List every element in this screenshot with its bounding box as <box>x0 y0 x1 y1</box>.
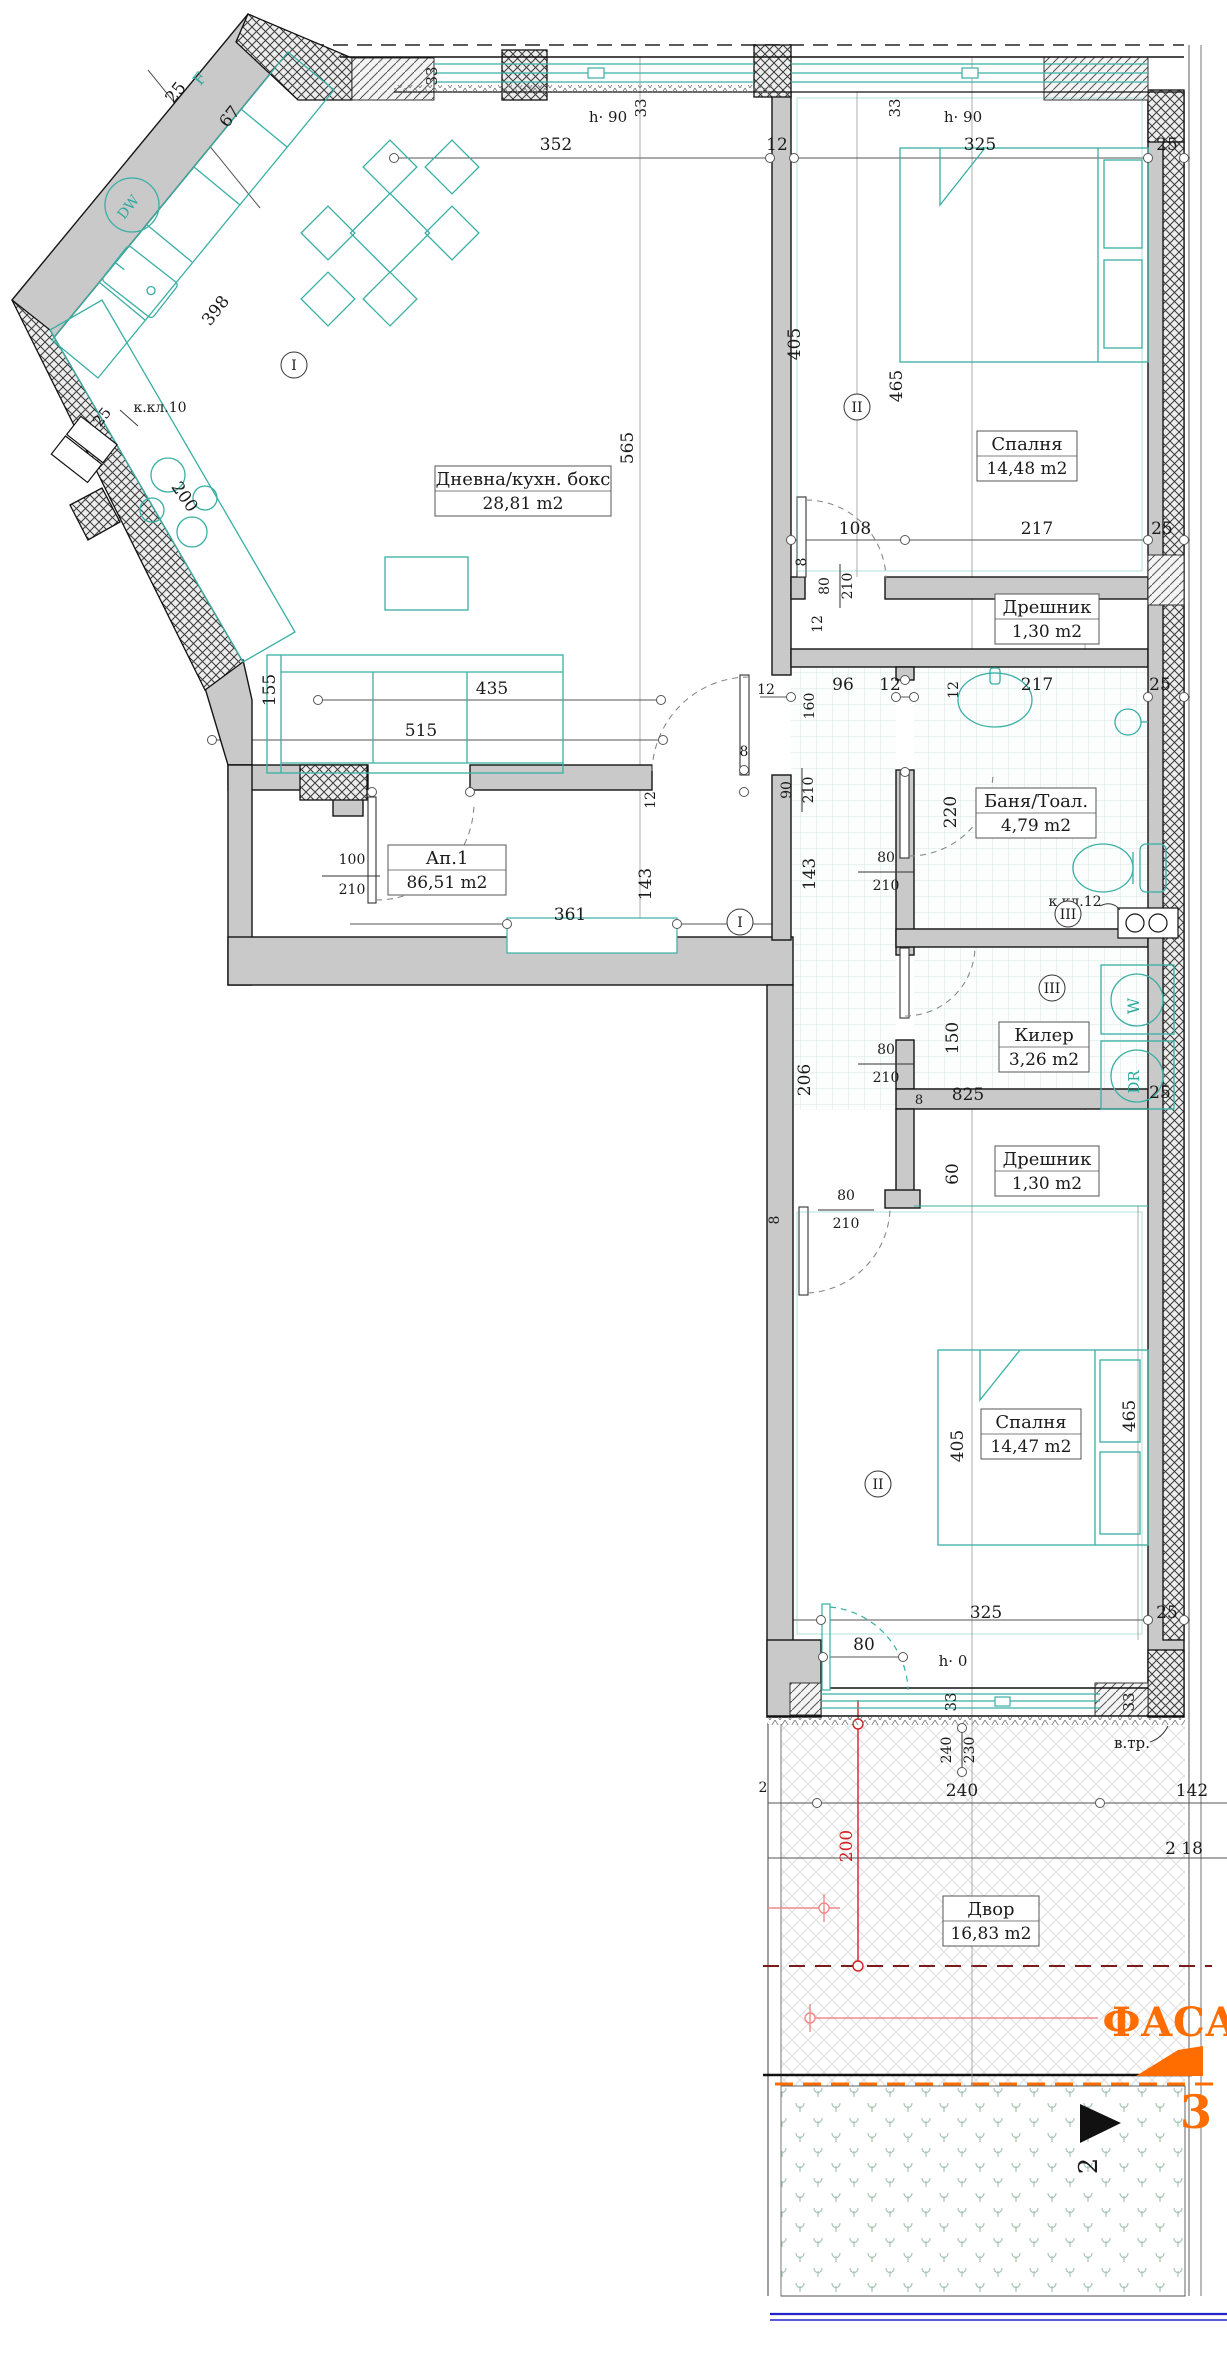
room-area: 86,51 m2 <box>406 873 487 893</box>
dim-tick <box>901 768 910 777</box>
wall-west-strip <box>767 985 793 1717</box>
dim-label: 150 <box>943 1022 963 1054</box>
dim-label: 405 <box>948 1430 968 1462</box>
bedroom2-boundary <box>797 1212 1142 1634</box>
room-name: Дрешник <box>1003 597 1093 618</box>
dim-label: 200 <box>837 1830 857 1862</box>
dim-tick <box>813 1799 822 1808</box>
wall-lobby-stub <box>885 1190 920 1208</box>
dim-tick <box>657 696 666 705</box>
dim-label: h· 90 <box>589 108 627 126</box>
dim-tick <box>208 736 217 745</box>
dim-label: W <box>1124 997 1143 1014</box>
wall-east-insulation <box>1163 142 1184 1640</box>
room-area: 1,30 m2 <box>1012 1174 1082 1194</box>
lintel-top-left <box>352 58 434 100</box>
dim-label: 25 <box>1149 675 1171 695</box>
dim-label: 60 <box>943 1163 963 1185</box>
dim-label: 465 <box>887 370 907 402</box>
axis-numeral: I <box>291 358 297 374</box>
room-name: Ап.1 <box>426 848 469 869</box>
dim-tick <box>503 920 512 929</box>
room-label: Баня/Тоал.4,79 m2 <box>976 788 1096 838</box>
dim-label: 33 <box>423 66 441 85</box>
dim-label: h· 90 <box>944 108 982 126</box>
dim-label: 33 <box>886 98 904 117</box>
dim-label: 220 <box>941 796 961 828</box>
dim-tick <box>1096 1799 1105 1808</box>
room-area: 14,47 m2 <box>990 1437 1071 1457</box>
dim-label: 143 <box>800 858 820 890</box>
dim-label: 210 <box>840 573 856 600</box>
grass-area <box>781 2086 1185 2296</box>
dim-label: 210 <box>833 1216 860 1232</box>
dim-label: DR <box>1125 1070 1143 1094</box>
axis-marker: III <box>1055 901 1081 927</box>
door-living-hall <box>652 675 749 775</box>
dim-label: 25 <box>1149 1083 1171 1103</box>
room-label: Ап.186,51 m2 <box>388 845 506 895</box>
dim-tick <box>901 676 910 685</box>
dim-label: 33 <box>942 1692 960 1711</box>
dim-tick <box>817 1616 826 1625</box>
dim-tick <box>958 1724 967 1733</box>
dim-label: 210 <box>801 777 817 804</box>
dim-label: 8 <box>915 1093 923 1108</box>
dim-label: 210 <box>873 1070 900 1086</box>
wall-left-diagonal <box>12 14 288 340</box>
floor-plan-page: 3521232525h· 90h· 9033333325673982002556… <box>0 0 1227 2357</box>
dim-label: 217 <box>1021 519 1053 539</box>
dim-tick <box>314 696 323 705</box>
dim-label: 465 <box>1120 1400 1140 1432</box>
dim-label: 2 <box>759 1780 768 1796</box>
bed-bedroom1 <box>900 148 1148 362</box>
dim-tick <box>790 154 799 163</box>
axis-marker: II <box>865 1471 891 1497</box>
dim-tick <box>787 693 796 702</box>
dim-tick <box>1180 693 1189 702</box>
dim-label: 8 <box>767 1216 783 1225</box>
dim-label: 210 <box>873 878 900 894</box>
dim-label: 142 <box>1176 1781 1208 1801</box>
axis-numeral: III <box>1044 981 1061 997</box>
axis-marker: I <box>727 909 753 935</box>
pier-entry <box>300 765 367 800</box>
dim-label: 12 <box>946 681 962 699</box>
dim-label: 90 <box>779 781 795 799</box>
floor-plan-svg: 3521232525h· 90h· 9033333325673982002556… <box>0 0 1227 2357</box>
dim-label: 3 <box>1180 2085 1212 2139</box>
dim-label: 80 <box>817 577 833 595</box>
dim-label: 240 <box>946 1781 978 1801</box>
dim-label: 200 <box>167 478 202 516</box>
dim-label: 80 <box>877 850 895 866</box>
wall-dressing2-west <box>896 1109 914 1195</box>
axis-numeral: II <box>872 1477 883 1493</box>
dim-label: 565 <box>618 432 638 464</box>
dim-label: 155 <box>260 674 280 706</box>
dim-label: 2 <box>1074 2158 1104 2175</box>
floor-finishes <box>791 667 1148 1110</box>
dim-tick <box>1144 693 1153 702</box>
dim-label: 325 <box>970 1603 1002 1623</box>
dim-label: 12 <box>757 682 775 698</box>
dim-label: 12 <box>879 675 901 695</box>
dim-label: 325 <box>964 135 996 155</box>
room-label: Спалня14,48 m2 <box>977 431 1077 481</box>
dim-tick <box>1180 536 1189 545</box>
dim-tick <box>740 766 749 775</box>
pier-bottom-right <box>1148 1650 1184 1717</box>
wall-bedroom1-south-a <box>791 577 805 599</box>
dim-tick <box>899 1653 908 1662</box>
wall-kitchen-diag-hatch <box>12 300 243 690</box>
dim-tick <box>910 693 919 702</box>
dim-tick <box>901 536 910 545</box>
dim-label: 8 <box>740 744 749 760</box>
dim-label: 108 <box>839 519 871 539</box>
dim-label: 352 <box>540 135 572 155</box>
room-name: Дневна/кухн. бокс <box>436 469 611 490</box>
dim-label: 435 <box>476 679 508 699</box>
parapet-ticks-bottom <box>767 1717 1185 1725</box>
dim-tick <box>740 788 749 797</box>
dim-tick <box>958 1768 967 1777</box>
dim-label: 12 <box>643 791 659 809</box>
dim-tick <box>787 536 796 545</box>
dim-label: 160 <box>802 693 818 720</box>
vent-shaft-kkl12 <box>1118 908 1178 938</box>
lintel-bottom-left <box>790 1683 821 1715</box>
dim-label: 80 <box>853 1635 875 1655</box>
room-label: Дневна/кухн. бокс28,81 m2 <box>435 466 611 516</box>
dim-label: 361 <box>554 905 586 925</box>
dim-label: 143 <box>636 868 656 900</box>
dim-label: 25 <box>1156 135 1178 155</box>
dim-tick <box>1144 536 1153 545</box>
dim-label: 33 <box>1120 1692 1138 1711</box>
room-area: 14,48 m2 <box>986 459 1067 479</box>
dim-label: 825 <box>952 1085 984 1105</box>
room-label: Двор16,83 m2 <box>943 1896 1039 1946</box>
dim-label: 12 <box>766 135 788 155</box>
dim-label: 398 <box>198 292 234 330</box>
dim-label: 210 <box>339 882 366 898</box>
room-label: Дрешник1,30 m2 <box>995 1146 1099 1196</box>
dim-label: 405 <box>785 328 805 360</box>
dim-label: 2 18 <box>1165 1839 1203 1859</box>
dim-tick <box>466 788 475 797</box>
dim-tick <box>390 154 399 163</box>
dim-tick <box>892 693 901 702</box>
room-label: Дрешник1,30 m2 <box>995 594 1099 644</box>
room-name: Двор <box>967 1899 1014 1920</box>
dim-label: 230 <box>962 1737 978 1764</box>
dim-label: 240 <box>939 1737 955 1764</box>
dim-tick <box>368 788 377 797</box>
dim-label: 96 <box>832 675 854 695</box>
dim-tick <box>673 920 682 929</box>
dim-label: 25 <box>1156 1603 1178 1623</box>
lintel-east-mid <box>1148 555 1184 605</box>
dim-label: ФАСА <box>1103 1999 1227 2046</box>
axis-marker: II <box>844 394 870 420</box>
room-area: 16,83 m2 <box>950 1924 1031 1944</box>
dim-label: 25 <box>1151 519 1173 539</box>
room-label: Килер3,26 m2 <box>999 1022 1089 1072</box>
parapet-ticks-top <box>394 85 772 93</box>
dim-label: 80 <box>837 1188 855 1204</box>
axis-marker: III <box>1039 975 1065 1001</box>
dim-label: 8 <box>794 558 810 567</box>
dim-label: 33 <box>632 98 650 117</box>
wall-bath-south <box>896 929 1148 947</box>
dim-label: h· 0 <box>939 1652 968 1670</box>
dim-label: 80 <box>877 1042 895 1058</box>
dim-label: 100 <box>339 852 366 868</box>
dim-tick <box>1144 1616 1153 1625</box>
bedroom1-boundary <box>797 98 1142 571</box>
room-name: Дрешник <box>1003 1149 1093 1170</box>
coffee-table <box>385 557 468 610</box>
dim-label: 206 <box>795 1064 815 1096</box>
dim-tick <box>1180 154 1189 163</box>
dim-tick <box>1180 1616 1189 1625</box>
room-name: Килер <box>1014 1025 1074 1046</box>
room-area: 28,81 m2 <box>482 494 563 514</box>
room-label: Спалня14,47 m2 <box>981 1409 1081 1459</box>
dim-tick <box>819 1653 828 1662</box>
room-name: Спалня <box>991 434 1062 455</box>
room-area: 4,79 m2 <box>1001 816 1071 836</box>
wall-storage-south <box>896 1089 1148 1109</box>
dim-tick <box>766 154 775 163</box>
axis-numeral: III <box>1060 907 1077 923</box>
dim-tick <box>659 736 668 745</box>
dim-label: к.кл.10 <box>133 400 186 416</box>
room-area: 1,30 m2 <box>1012 622 1082 642</box>
room-area: 3,26 m2 <box>1009 1050 1079 1070</box>
axis-numeral: II <box>851 400 862 416</box>
sofa <box>267 655 563 773</box>
axis-numeral: I <box>737 915 743 931</box>
dim-label: 515 <box>405 721 437 741</box>
dim-tick <box>1144 154 1153 163</box>
dining-set <box>301 140 479 326</box>
room-name: Спалня <box>995 1412 1066 1433</box>
hall-window <box>507 918 677 953</box>
room-name: Баня/Тоал. <box>984 791 1088 812</box>
wall-dressing1-south <box>791 649 1148 667</box>
dim-label: 217 <box>1021 675 1053 695</box>
dim-label: 12 <box>810 615 826 633</box>
wall-central-north <box>772 92 791 675</box>
wall-living-south-b <box>470 765 652 790</box>
dim-label: в.тр. <box>1114 1734 1150 1752</box>
axis-marker: I <box>281 352 307 378</box>
